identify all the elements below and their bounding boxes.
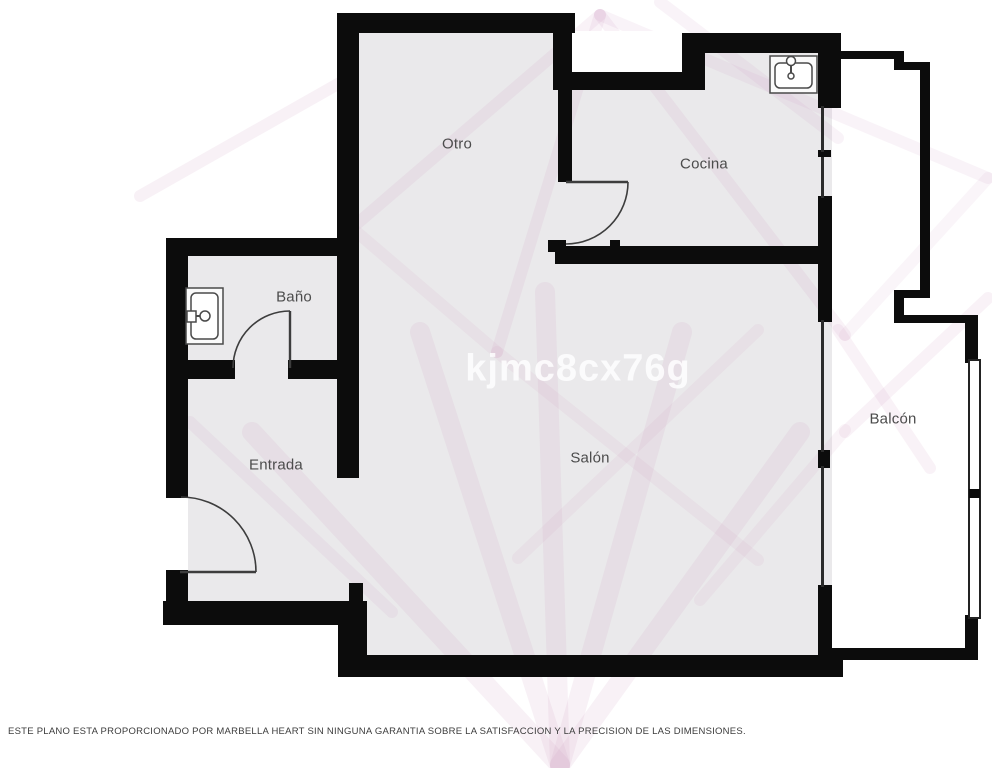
kitchen-window	[821, 157, 824, 198]
room-label-otro: Otro	[442, 136, 472, 153]
floor-plan-canvas: Otro Cocina Baño Entrada Salón Balcón kj…	[0, 0, 992, 768]
bathroom-sink-icon	[186, 288, 223, 344]
kitchen-sink-icon	[770, 56, 817, 93]
room-label-cocina: Cocina	[680, 156, 728, 173]
room-label-bano: Baño	[276, 289, 312, 306]
disclaimer-text: ESTE PLANO ESTA PROPORCIONADO POR MARBEL…	[8, 726, 746, 737]
kitchen-window	[821, 106, 824, 152]
salon-window	[821, 320, 824, 452]
room-label-balcon: Balcón	[869, 411, 916, 428]
room-label-entrada: Entrada	[249, 457, 303, 474]
outside-notch	[572, 31, 682, 72]
windows-layer	[821, 106, 980, 618]
watermark-code: kjmc8cx76g	[465, 348, 691, 391]
salon-window	[821, 466, 824, 587]
room-label-salon: Salón	[570, 450, 609, 467]
